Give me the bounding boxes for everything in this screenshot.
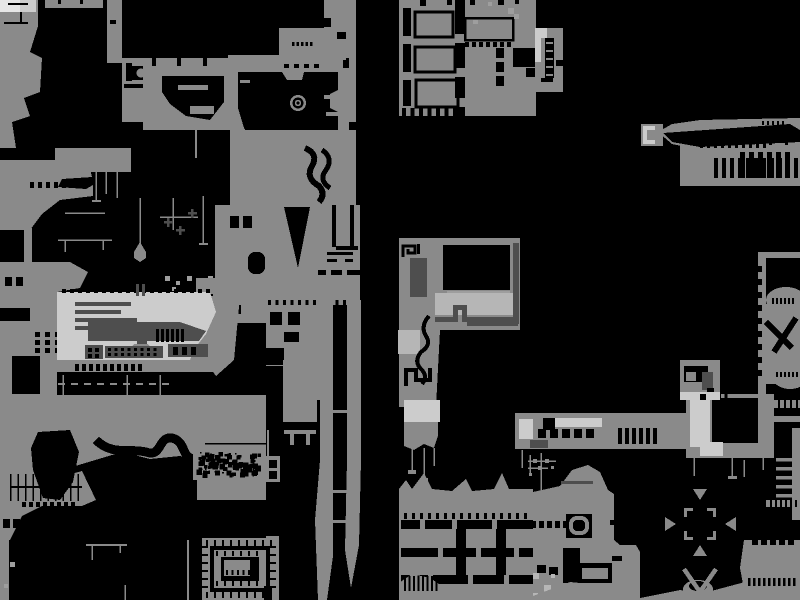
lower-center-rooms-shape <box>492 520 497 529</box>
upper-right-cave-shape <box>643 126 655 130</box>
small-right-outpost-shape <box>686 372 696 381</box>
lower-left-terrain-shape <box>10 486 82 488</box>
lower-center-rooms-shape <box>401 548 533 557</box>
central-shaft-shape <box>269 471 277 479</box>
central-shaft-shape <box>290 434 294 445</box>
lower-right-cave-shape <box>529 473 532 476</box>
central-shaft-shape <box>333 410 347 413</box>
upper-rooms-grid-shape <box>514 14 519 19</box>
rooms-side-structure-shape <box>556 60 563 66</box>
lower-center-rooms-shape <box>456 529 466 548</box>
central-shaft-shape <box>320 300 333 460</box>
rubble-speckles-shape <box>197 452 261 478</box>
central-shaft-shape <box>284 430 316 434</box>
central-shaft-shape <box>333 490 347 493</box>
upper-mid-walls-shape <box>324 0 346 60</box>
shelter-marker-shape <box>684 531 687 540</box>
central-shaft-shape <box>283 360 317 422</box>
region-rooms-side-structure <box>535 28 563 92</box>
upper-rooms-grid-shape <box>498 0 504 5</box>
central-shaft-shape <box>306 434 310 445</box>
upper-mid-walls-shape <box>324 18 331 27</box>
lower-right-cave-shape <box>612 556 622 561</box>
upper-mid-walls-shape <box>230 130 292 205</box>
lower-left-terrain-shape <box>0 528 9 600</box>
shelter-marker-shape <box>684 508 687 517</box>
plateau-cavern-shape <box>178 85 208 90</box>
central-towers-shape <box>345 259 353 262</box>
meander-room-column-shape <box>447 291 510 293</box>
lower-right-cave-shape <box>537 565 546 573</box>
gate-corridor-shape <box>530 440 548 448</box>
region-spiral-maze <box>202 538 278 600</box>
mid-left-arm-shape <box>92 200 101 202</box>
upper-mid-walls-shape <box>248 252 265 274</box>
upper-left-terrain-shape <box>80 0 83 4</box>
central-towers-shape <box>326 270 331 275</box>
left-terrain-column-shape <box>16 277 23 286</box>
region-small-right-outpost <box>680 360 720 400</box>
upper-rooms-grid-shape <box>403 80 411 106</box>
meander-room-column-shape <box>398 330 420 354</box>
gate-corridor-shape <box>550 418 602 427</box>
lower-center-rooms-shape <box>514 548 519 557</box>
upper-left-terrain-shape <box>107 0 122 63</box>
upper-rooms-grid-shape <box>508 8 514 14</box>
light-facility-shape <box>75 318 137 322</box>
light-facility-shape <box>85 345 103 359</box>
right-shaft-shape <box>758 266 762 376</box>
lower-right-cave-shape <box>610 520 616 525</box>
central-towers-shape <box>284 332 299 342</box>
central-shaft-shape <box>269 460 277 468</box>
plateau-cavern-shape <box>240 80 250 83</box>
lower-right-cave-shape <box>582 568 608 579</box>
lower-center-rooms-shape <box>496 529 506 548</box>
upper-rooms-grid-shape <box>513 48 538 67</box>
upper-mid-walls-shape <box>243 216 252 228</box>
lower-right-cave-shape <box>533 459 537 463</box>
lower-right-cave-shape <box>565 490 595 493</box>
upper-rooms-grid-shape <box>403 8 411 36</box>
light-facility-shape <box>105 346 163 358</box>
upper-rooms-grid-shape <box>488 2 492 6</box>
region-ring-portal <box>290 95 306 111</box>
upper-right-cave-shape <box>643 140 655 144</box>
game-map-screen <box>0 0 800 600</box>
rooms-side-structure-shape <box>535 36 541 62</box>
upper-left-terrain-shape <box>0 0 20 12</box>
region-upper-rooms-grid <box>399 0 538 116</box>
central-towers-shape <box>327 259 337 262</box>
light-facility-shape <box>142 284 145 296</box>
upper-right-cave-shape <box>785 136 788 145</box>
spiral-maze-shape <box>206 592 272 598</box>
lower-center-rooms-shape <box>438 548 443 557</box>
lower-center-rooms-shape <box>456 557 466 575</box>
lower-center-rooms-shape <box>504 575 509 584</box>
upper-mid-walls-shape <box>291 130 343 205</box>
central-towers-shape <box>350 205 354 247</box>
lower-right-cave-shape <box>551 574 555 578</box>
lower-left-terrain-shape <box>197 478 266 500</box>
rooms-side-structure-shape <box>541 78 553 82</box>
central-towers-shape <box>270 312 282 325</box>
central-towers-shape <box>288 312 300 325</box>
right-structure-shape <box>700 442 723 456</box>
meander-room-column-shape <box>417 244 420 254</box>
meander-room-column-shape <box>404 400 440 422</box>
wires-and-droplet-shape <box>191 209 194 218</box>
light-facility-shape <box>75 302 131 306</box>
upper-rooms-grid-shape <box>473 20 478 24</box>
lower-left-terrain-shape <box>13 519 20 528</box>
upper-left-terrain-shape <box>8 3 28 5</box>
lower-center-rooms-shape <box>496 557 506 575</box>
light-facility-shape <box>136 284 139 296</box>
ring-portal-shape <box>296 101 299 104</box>
lower-right-cave-shape <box>533 573 539 579</box>
lower-center-rooms-shape <box>468 575 473 584</box>
shelter-marker-shape <box>713 531 716 540</box>
lower-left-terrain-shape <box>58 383 169 385</box>
wires-and-droplet-shape <box>165 276 170 281</box>
lower-left-terrain-shape <box>10 562 15 567</box>
pixel-map-canvas <box>0 0 800 600</box>
lower-right-cave-shape <box>545 459 549 463</box>
lower-right-cave-shape <box>551 466 554 469</box>
light-facility-shape <box>182 347 187 355</box>
lower-right-cave-shape <box>549 567 558 575</box>
left-terrain-column-shape <box>196 278 238 294</box>
upper-mid-walls-shape <box>337 32 346 39</box>
mid-left-arm-shape <box>55 148 131 172</box>
meander-room-column-shape <box>404 422 438 436</box>
wires-and-droplet-shape <box>187 276 192 281</box>
upper-mid-walls-shape <box>279 28 324 68</box>
small-right-outpost-shape <box>702 372 713 390</box>
upper-right-cave-shape <box>766 133 790 136</box>
lower-right-cave-shape <box>538 466 542 470</box>
upper-left-terrain-shape <box>45 0 103 8</box>
plateau-cavern-shape <box>177 58 181 66</box>
central-towers-shape <box>327 252 353 255</box>
region-lower-center-rooms <box>399 473 533 600</box>
meander-room-column-shape <box>410 258 427 297</box>
upper-mid-walls-shape <box>230 216 239 228</box>
wires-and-droplet-shape <box>199 243 208 245</box>
upper-left-terrain-shape <box>58 0 61 4</box>
gate-corridor-shape <box>543 418 555 430</box>
light-facility-shape <box>173 347 178 355</box>
meander-room-column-shape <box>443 245 510 290</box>
upper-rooms-grid-shape <box>496 48 504 86</box>
upper-mid-walls-shape <box>349 122 356 130</box>
lower-center-rooms-shape <box>452 520 457 529</box>
upper-rooms-grid-shape <box>455 34 465 43</box>
light-facility-shape <box>75 310 121 314</box>
meander-room-column-shape <box>513 243 519 324</box>
upper-rooms-grid-shape <box>420 0 426 6</box>
gate-corridor-shape <box>519 419 533 439</box>
left-terrain-column-shape <box>0 308 30 321</box>
central-shaft-shape <box>347 300 361 460</box>
region-rubble-speckles <box>193 443 266 480</box>
central-shaft-shape <box>333 520 347 523</box>
lower-right-cave-shape <box>567 494 597 497</box>
right-structure-shape <box>690 398 710 447</box>
plateau-cavern-shape <box>152 58 156 66</box>
plateau-cavern-shape <box>324 95 338 99</box>
right-structure-shape <box>728 476 737 479</box>
lower-right-cave-shape <box>740 540 800 600</box>
central-towers-shape <box>332 205 336 247</box>
upper-rooms-grid-shape <box>447 0 452 5</box>
lower-left-terrain-shape <box>3 519 10 528</box>
upper-rooms-grid-shape <box>403 44 411 72</box>
upper-left-terrain-shape <box>4 22 28 24</box>
plateau-cavern-shape <box>326 112 338 116</box>
central-towers-shape <box>318 270 360 275</box>
small-right-outpost-shape <box>700 394 706 400</box>
central-towers-shape <box>336 246 358 250</box>
light-facility-shape <box>191 347 196 355</box>
left-terrain-column-shape <box>12 356 40 394</box>
upper-rooms-grid-shape <box>515 0 519 4</box>
wires-and-droplet-shape <box>179 226 182 235</box>
lower-right-cave-shape <box>569 498 597 501</box>
spiral-maze-shape <box>206 540 272 546</box>
meander-room-column-shape <box>462 317 518 322</box>
plateau-cavern-shape <box>203 58 207 66</box>
upper-right-cave-shape <box>769 136 772 145</box>
wires-and-droplet-shape <box>176 281 180 285</box>
lower-center-rooms-shape <box>420 520 425 529</box>
lower-right-cave-shape <box>561 481 593 484</box>
central-towers-shape <box>266 348 284 365</box>
meander-room-column-shape <box>435 293 513 315</box>
shelter-marker-shape <box>713 508 716 517</box>
lower-left-terrain-shape <box>4 584 8 588</box>
lower-right-cave-shape <box>563 486 593 489</box>
central-towers-shape <box>342 270 347 275</box>
upper-left-terrain-shape <box>110 20 116 24</box>
rubble-speckles-shape <box>205 443 266 445</box>
left-terrain-column-shape <box>5 277 12 286</box>
wires-and-droplet-shape <box>167 218 170 227</box>
lower-center-rooms-shape <box>476 548 481 557</box>
right-structure-shape <box>712 398 758 443</box>
region-light-facility <box>55 284 240 376</box>
meander-room-column-shape <box>408 470 416 474</box>
upper-rooms-grid-shape <box>470 0 475 5</box>
plateau-cavern-shape <box>190 106 214 114</box>
